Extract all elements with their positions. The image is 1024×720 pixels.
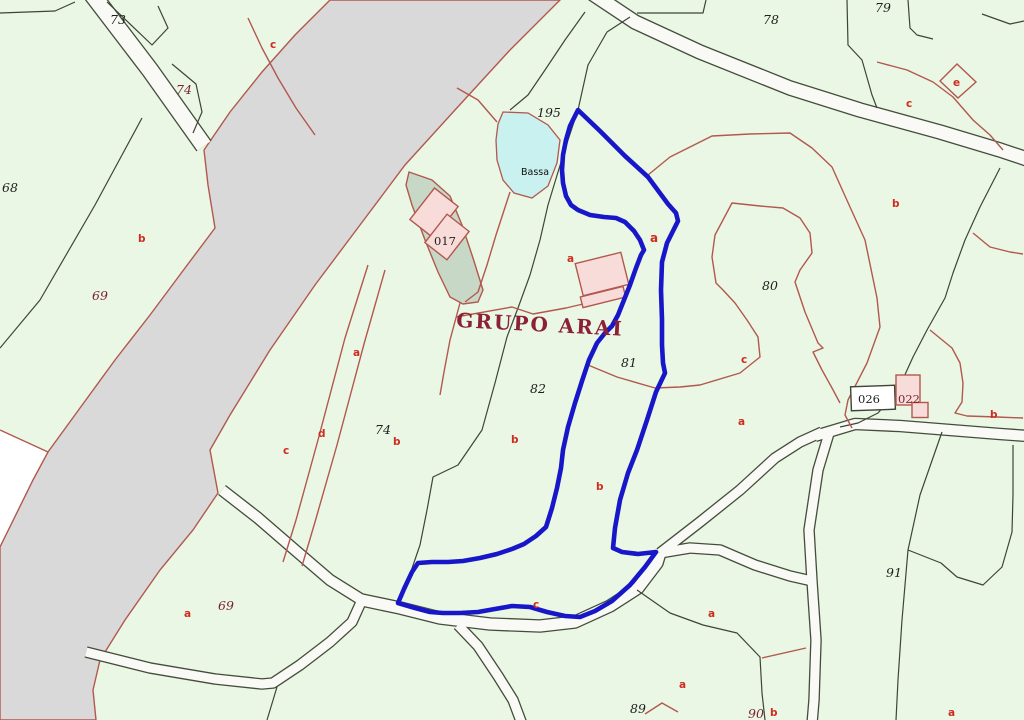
- map-canvas: 7368746919578798081827491899069017026022…: [0, 0, 1024, 720]
- subparcel-letter: a: [184, 608, 191, 620]
- parcel-number: 81: [621, 355, 637, 370]
- subparcel-letter: a: [679, 679, 686, 691]
- subparcel-letter: b: [892, 198, 900, 210]
- parcel-number: 022: [898, 392, 920, 406]
- parcel-number: 91: [886, 565, 902, 580]
- parcel-number: 74: [375, 422, 391, 437]
- subparcel-letter: b: [511, 434, 519, 446]
- subparcel-letter: c: [906, 98, 912, 110]
- parcel-number: 74: [176, 82, 192, 97]
- subparcel-letter: a: [567, 253, 574, 265]
- subparcel-letter: a: [650, 231, 658, 245]
- subparcel-letter: e: [953, 77, 960, 89]
- subparcel-letter: a: [708, 608, 715, 620]
- parcel-number: 89: [630, 701, 646, 716]
- parcel-number: 68: [2, 180, 18, 195]
- cadastral-map[interactable]: 7368746919578798081827491899069017026022…: [0, 0, 1024, 720]
- parcel-number: 69: [92, 288, 108, 303]
- parcel-number: 78: [763, 12, 779, 27]
- subparcel-letter: b: [770, 707, 778, 719]
- subparcel-letter: b: [393, 436, 401, 448]
- parcel-number: 026: [858, 392, 880, 406]
- subparcel-letter: c: [533, 599, 539, 611]
- parcel-number: 79: [875, 0, 891, 15]
- subparcel-letter: b: [596, 481, 604, 493]
- subparcel-letter: a: [738, 416, 745, 428]
- subparcel-letter: d: [318, 428, 326, 440]
- subparcel-letter: b: [138, 233, 146, 245]
- subparcel-letter: c: [741, 354, 747, 366]
- subparcel-letter: a: [948, 707, 955, 719]
- parcel-number: 80: [762, 278, 778, 293]
- parcel-number: 90: [748, 706, 764, 720]
- subparcel-letter: c: [283, 445, 289, 457]
- subparcel-letter: b: [990, 409, 998, 421]
- parcel-number: 82: [530, 381, 546, 396]
- parcel-number: 69: [218, 598, 234, 613]
- subparcel-letter: a: [353, 347, 360, 359]
- subparcel-letter: c: [270, 39, 276, 51]
- parcel-number: 017: [434, 234, 456, 248]
- bassa-label: Bassa: [521, 167, 549, 178]
- parcel-number: 195: [537, 105, 561, 120]
- parcel-number: 73: [110, 12, 126, 27]
